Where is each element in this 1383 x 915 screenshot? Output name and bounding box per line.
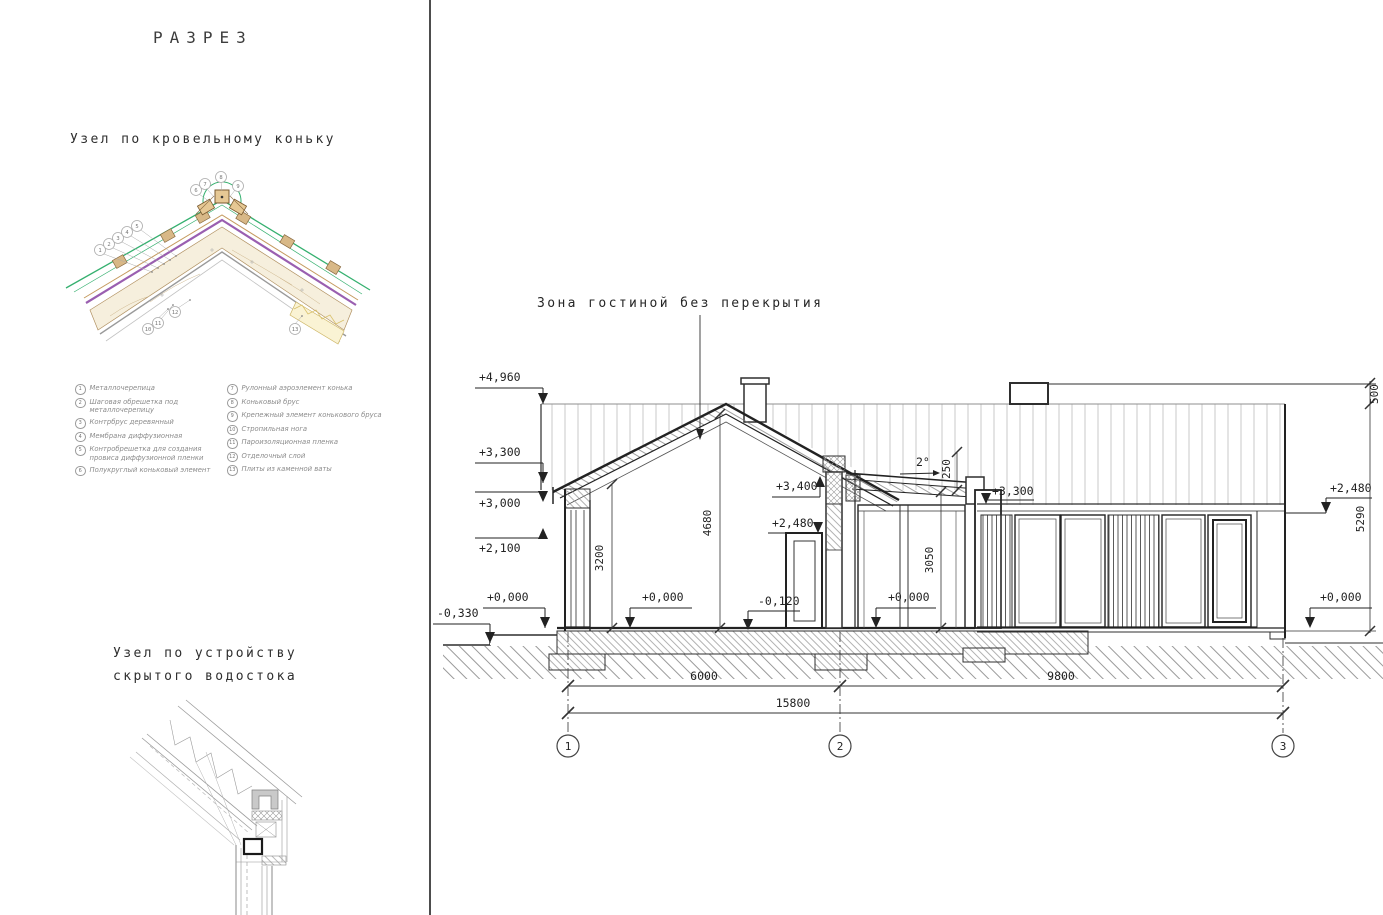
- drain-wall: [236, 845, 286, 915]
- legend-item-text: Стропильная нога: [238, 425, 308, 434]
- ridge-detail-drawing: 1 2 3 4 5 6 7 8 9 10 11 12 13: [60, 170, 390, 355]
- left-wall: [565, 489, 590, 631]
- level-mark: +2,480: [768, 516, 823, 533]
- svg-text:+0,000: +0,000: [1320, 590, 1362, 604]
- level-mark: +2,100: [475, 528, 548, 555]
- legend-item-number: 3: [75, 418, 86, 429]
- dim-ridge-height: 4680: [701, 510, 714, 537]
- callout-6: 6: [194, 188, 197, 194]
- dim-link-height: 3050: [923, 547, 936, 574]
- legend-item-text: Мембрана диффузионная: [86, 432, 183, 441]
- grid-axis-2: 2: [837, 740, 844, 753]
- legend-item-number: 2: [75, 398, 86, 409]
- callout-12: 12: [172, 310, 179, 316]
- sheet-title: РАЗРЕЗ: [153, 28, 253, 47]
- legend-item-number: 12: [227, 452, 238, 463]
- drain-heading-line1: Узел по устройству: [113, 643, 297, 666]
- callout-5: 5: [135, 224, 138, 230]
- callout-2: 2: [107, 242, 110, 248]
- legend-item-text: Металлочерепица: [86, 384, 155, 393]
- ridge-legend-right: 7Рулонный аэроэлемент конька 8Коньковый …: [227, 384, 387, 479]
- legend-item: 2Шаговая обрешетка под металлочерепицу: [75, 398, 227, 416]
- level-mark: +3,400: [772, 476, 825, 497]
- level-mark: +0,000: [625, 590, 692, 628]
- svg-text:+3,300: +3,300: [479, 445, 521, 459]
- legend-item-number: 13: [227, 465, 238, 476]
- level-mark: +3,000: [475, 491, 548, 510]
- svg-text:+2,480: +2,480: [772, 516, 814, 530]
- legend-item: 5Контробрешетка для создания провиса диф…: [75, 445, 227, 463]
- svg-text:+3,400: +3,400: [776, 479, 818, 493]
- dim-span-2-3: 9800: [1047, 669, 1075, 683]
- legend-item-text: Шаговая обрешетка под металлочерепицу: [86, 398, 228, 416]
- entrance-door: [1208, 515, 1251, 627]
- level-mark: +4,960: [475, 370, 548, 404]
- svg-text:+2,100: +2,100: [479, 541, 521, 555]
- legend-item-text: Плиты из каменной ваты: [238, 465, 332, 474]
- gutter-box: [244, 839, 262, 854]
- grid-axes: 1 2 3: [557, 735, 1294, 757]
- legend-item-text: Полукруглый коньковый элемент: [86, 466, 211, 475]
- callout-10: 10: [145, 327, 152, 333]
- svg-text:+4,960: +4,960: [479, 370, 521, 384]
- link-glazing: [858, 505, 965, 628]
- svg-text:+0,000: +0,000: [642, 590, 684, 604]
- grid-axis-3: 3: [1280, 740, 1287, 753]
- roof-vent: [1010, 383, 1376, 404]
- level-mark: +3,300: [475, 445, 548, 483]
- dim-right-height: 5290: [1354, 506, 1367, 533]
- slat-panel: [1108, 515, 1159, 627]
- dim-span-total: 15800: [776, 696, 811, 710]
- legend-item: 10Стропильная нога: [227, 425, 387, 436]
- legend-item: 3Контрбрус деревянный: [75, 418, 227, 429]
- dim-parapet: 500: [1368, 384, 1381, 404]
- legend-item-number: 10: [227, 425, 238, 436]
- legend-item: 11Пароизоляционная пленка: [227, 438, 387, 449]
- window: [1162, 515, 1205, 627]
- callout-13: 13: [292, 327, 299, 333]
- drain-detail-heading: Узел по устройству скрытого водостока: [113, 643, 297, 689]
- svg-text:+2,480: +2,480: [1330, 481, 1372, 495]
- callout-11: 11: [155, 321, 162, 327]
- callout-1: 1: [98, 248, 101, 254]
- legend-item: 8Коньковый брус: [227, 398, 387, 409]
- legend-item-text: Контрбрус деревянный: [86, 418, 174, 427]
- legend-item-number: 8: [227, 398, 238, 409]
- level-mark: +0,000: [1305, 590, 1372, 628]
- dim-span-1-2: 6000: [690, 669, 718, 683]
- legend-item-text: Коньковый брус: [238, 398, 300, 407]
- legend-item-number: 4: [75, 432, 86, 443]
- ridge-legend-left: 1Металлочерепица 2Шаговая обрешетка под …: [75, 384, 227, 479]
- callout-9: 9: [236, 184, 239, 190]
- svg-text:+0,000: +0,000: [888, 590, 930, 604]
- legend-item-text: Рулонный аэроэлемент конька: [238, 384, 353, 393]
- legend-item: 12Отделочный слой: [227, 452, 387, 463]
- dim-wall-height: 3200: [593, 545, 606, 572]
- svg-text:+3,000: +3,000: [479, 496, 521, 510]
- svg-text:+0,000: +0,000: [487, 590, 529, 604]
- drain-detail-drawing: [120, 700, 350, 915]
- ridge-detail-heading: Узел по кровельному коньку: [70, 132, 336, 147]
- legend-item: 1Металлочерепица: [75, 384, 227, 395]
- callout-8: 8: [219, 175, 222, 181]
- drawing-sheet: РАЗРЕЗ Узел по кровельному коньку: [0, 0, 1383, 915]
- dim-roof-thickness: 250: [940, 459, 953, 479]
- zone-label: Зона гостиной без перекрытия: [537, 296, 823, 311]
- legend-item-number: 5: [75, 445, 86, 456]
- legend-item: 9Крепежный элемент конькового бруса: [227, 411, 387, 422]
- callout-3: 3: [116, 236, 119, 242]
- legend-item-number: 7: [227, 384, 238, 395]
- drain-heading-line2: скрытого водостока: [113, 666, 297, 689]
- window: [1015, 515, 1060, 627]
- grid-axis-1: 1: [565, 740, 572, 753]
- legend-item-number: 6: [75, 466, 86, 477]
- svg-text:+3,300: +3,300: [992, 484, 1034, 498]
- legend-item-text: Отделочный слой: [238, 452, 306, 461]
- legend-item-text: Контробрешетка для создания провиса дифф…: [86, 445, 228, 463]
- slat-panel: [981, 515, 1012, 627]
- legend-item: 7Рулонный аэроэлемент конька: [227, 384, 387, 395]
- svg-text:-0,120: -0,120: [758, 594, 800, 608]
- callout-7: 7: [203, 182, 206, 188]
- legend-item: 6Полукруглый коньковый элемент: [75, 466, 227, 477]
- legend-item-text: Крепежный элемент конькового бруса: [238, 411, 382, 420]
- window: [1061, 515, 1105, 627]
- legend-item-number: 9: [227, 411, 238, 422]
- svg-text:-0,330: -0,330: [437, 606, 479, 620]
- level-mark: +0,000: [483, 590, 550, 628]
- legend-item-number: 11: [227, 438, 238, 449]
- level-mark: -0,330: [433, 606, 495, 643]
- building-section-drawing: Зона гостиной без перекрытия 3200 4680 3…: [430, 0, 1383, 915]
- angle-label: 2°: [916, 455, 930, 469]
- legend-item: 13Плиты из каменной ваты: [227, 465, 387, 476]
- legend-item-number: 1: [75, 384, 86, 395]
- interior-door: [786, 533, 822, 628]
- legend-item: 4Мембрана диффузионная: [75, 432, 227, 443]
- level-mark: +0,000: [871, 590, 936, 628]
- drain-eave-assembly: [244, 790, 287, 865]
- legend-item-text: Пароизоляционная пленка: [238, 438, 339, 447]
